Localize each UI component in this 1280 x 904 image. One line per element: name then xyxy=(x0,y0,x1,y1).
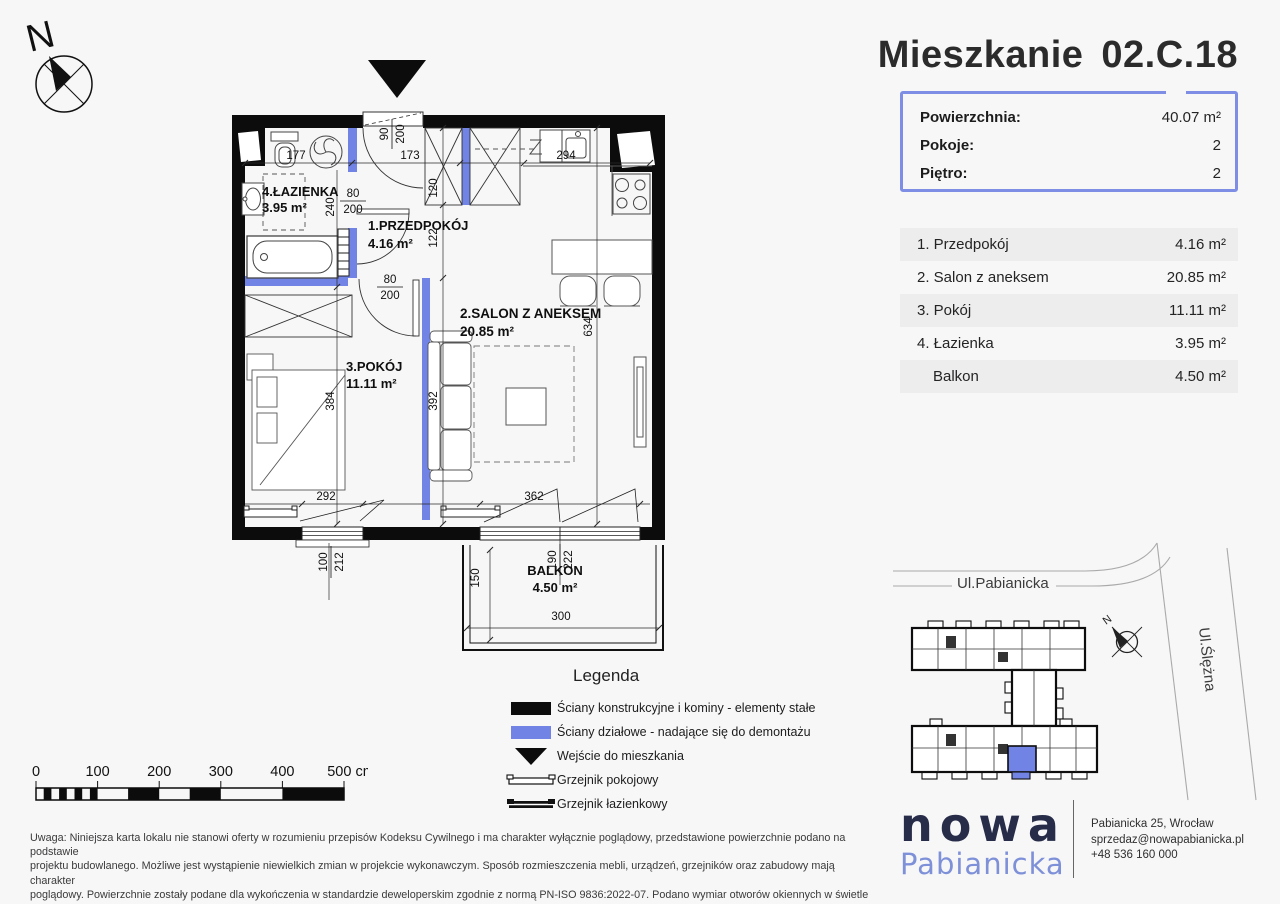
dim-bath-door: 80 200 xyxy=(340,188,366,216)
label-room-area: 11.11 m² xyxy=(346,376,397,391)
scale-bar: 0 100 200 300 400 500 cm xyxy=(28,758,368,810)
apartment-title-label: Mieszkanie xyxy=(878,34,1084,77)
dim-177: 177 xyxy=(286,150,305,162)
summary-box-notch xyxy=(1166,90,1186,96)
legend-title: Legenda xyxy=(573,666,845,686)
room-area: 4.50 m² xyxy=(1175,368,1226,385)
scale-tick-label: 200 xyxy=(147,764,171,780)
legend-item-label: Ściany działowe - nadające się do demont… xyxy=(557,725,811,739)
room-list-row: 4. Łazienka 3.95 m² xyxy=(900,327,1238,360)
wall-partition-swatch xyxy=(511,726,551,739)
brand-logo-line1: nowa xyxy=(900,802,1066,848)
disclaimer: Uwaga: Niniejsza karta lokalu nie stanow… xyxy=(30,831,878,904)
legend-item-label: Wejście do mieszkania xyxy=(557,749,684,763)
dim-173: 173 xyxy=(400,150,419,162)
summary-value: 2 xyxy=(1213,165,1221,182)
room-area: 3.95 m² xyxy=(1175,335,1226,352)
highlighted-unit-balcony xyxy=(1012,772,1030,779)
scale-tick-label: 300 xyxy=(209,764,233,780)
dim-392: 392 xyxy=(428,391,440,410)
summary-row-floor: Piętro: 2 xyxy=(903,159,1235,187)
lot-card-page: N xyxy=(0,0,1280,904)
dim-362: 362 xyxy=(524,491,543,503)
chairs xyxy=(560,276,640,306)
legend-item-label: Grzejnik pokojowy xyxy=(557,773,658,787)
contact-address: Pabianicka 25, Wrocław xyxy=(1091,817,1244,833)
label-salon: 2.SALON Z ANEKSEM xyxy=(460,306,601,321)
summary-value: 40.07 m² xyxy=(1162,109,1221,126)
brand-logo: nowa Pabianicka xyxy=(900,802,1066,879)
room-list-row: 2. Salon z aneksem 20.85 m² xyxy=(900,261,1238,294)
svg-text:90: 90 xyxy=(379,128,391,141)
apartment-number: 02.C.18 xyxy=(1101,34,1238,77)
footer-divider xyxy=(1073,800,1074,878)
scale-bar-blocks xyxy=(36,788,344,800)
dim-240: 240 xyxy=(325,197,337,216)
north-label: N xyxy=(22,13,59,60)
label-salon-area: 20.85 m² xyxy=(460,324,515,339)
label-bathroom: 4.ŁAZIENKA xyxy=(262,184,339,199)
radiator-room-icon xyxy=(506,773,556,787)
svg-text:200: 200 xyxy=(343,204,362,216)
disclaimer-line: projektu budowlanego. Możliwe jest wystą… xyxy=(30,859,878,887)
legend: Legenda Ściany konstrukcyjne i kominy - … xyxy=(505,666,845,816)
street-label-right: Ul.Ślężna xyxy=(1195,627,1220,693)
bed xyxy=(247,354,345,490)
dim-292: 292 xyxy=(316,491,335,503)
entrance-arrow-icon xyxy=(368,60,426,98)
disclaimer-line: poglądowy. Powierzchnie zostały podane d… xyxy=(30,888,878,904)
radiator-bath-icon xyxy=(506,797,556,811)
contact-phone: +48 536 160 000 xyxy=(1091,848,1244,864)
contact-block: Pabianicka 25, Wrocław sprzedaz@nowapabi… xyxy=(1091,817,1244,864)
dim-room-door: 80 200 xyxy=(377,274,403,302)
legend-item: Grzejnik łazienkowy xyxy=(505,792,845,816)
wardrobe xyxy=(245,295,352,337)
map-north-label: N xyxy=(1101,613,1115,627)
label-room: 3.POKÓJ xyxy=(346,359,402,374)
street-label-top: Ul.Pabianicka xyxy=(957,575,1049,592)
room-name: Balkon xyxy=(917,368,979,385)
dim-150: 150 xyxy=(470,568,482,587)
dining-table xyxy=(552,240,652,274)
scale-tick-label: 0 xyxy=(32,764,40,780)
svg-text:80: 80 xyxy=(384,274,397,286)
highlighted-unit xyxy=(1008,746,1036,772)
legend-item: Ściany konstrukcyjne i kominy - elementy… xyxy=(505,696,845,720)
label-balcony: BALKON xyxy=(527,563,583,578)
wall-solid-swatch xyxy=(511,702,551,715)
summary-row-rooms: Pokoje: 2 xyxy=(903,131,1235,159)
room-list-row: 3. Pokój 11.11 m² xyxy=(900,294,1238,327)
dim-120: 120 xyxy=(428,178,440,197)
room-list-row: 1. Przedpokój 4.16 m² xyxy=(900,228,1238,261)
room-name: 1. Przedpokój xyxy=(917,236,1009,253)
summary-label: Pokoje: xyxy=(920,137,974,154)
summary-value: 2 xyxy=(1213,137,1221,154)
summary-label: Piętro: xyxy=(920,165,968,182)
room-area: 4.16 m² xyxy=(1175,236,1226,253)
label-balcony-area: 4.50 m² xyxy=(533,580,578,595)
coffee-table xyxy=(506,388,546,425)
balcony-door-window xyxy=(480,489,640,540)
dim-294: 294 xyxy=(556,150,576,162)
bathtub xyxy=(247,236,338,278)
label-hall-area: 4.16 m² xyxy=(368,236,413,251)
room-list-row: Balkon 4.50 m² xyxy=(900,360,1238,393)
room-area: 20.85 m² xyxy=(1167,269,1226,286)
scale-tick-label: 400 xyxy=(270,764,294,780)
bath-radiator xyxy=(338,229,349,276)
washbasin xyxy=(242,183,264,215)
scale-tick-label: 100 xyxy=(85,764,109,780)
shaft-left xyxy=(238,131,261,162)
dim-window-left: 100 212 xyxy=(318,546,346,578)
svg-text:200: 200 xyxy=(380,290,399,302)
legend-item-label: Ściany konstrukcyjne i kominy - elementy… xyxy=(557,701,815,715)
disclaimer-line: Uwaga: Niniejsza karta lokalu nie stanow… xyxy=(30,831,878,859)
shaft-right xyxy=(617,131,655,168)
brand-logo-line2: Pabianicka xyxy=(900,850,1066,879)
room-name: 2. Salon z aneksem xyxy=(917,269,1049,286)
north-compass-icon: N xyxy=(22,13,92,112)
room-name: 4. Łazienka xyxy=(917,335,994,352)
bedroom-door xyxy=(359,279,419,336)
floor-plan: N xyxy=(0,0,880,680)
label-hall: 1.PRZEDPOKÓJ xyxy=(368,218,468,233)
summary-label: Powierzchnia: xyxy=(920,109,1021,126)
svg-text:100: 100 xyxy=(318,552,330,571)
contact-email: sprzedaz@nowapabianicka.pl xyxy=(1091,833,1244,849)
stove xyxy=(613,174,650,214)
svg-text:200: 200 xyxy=(395,124,407,143)
entrance-triangle-icon xyxy=(515,748,547,765)
map-compass-icon: N xyxy=(1101,613,1142,657)
dim-384: 384 xyxy=(325,391,337,411)
label-bathroom-area: 3.95 m² xyxy=(262,200,307,215)
dim-300: 300 xyxy=(551,611,570,623)
room-radiators xyxy=(244,506,500,517)
summary-row-area: Powierzchnia: 40.07 m² xyxy=(903,103,1235,131)
svg-text:80: 80 xyxy=(347,188,360,200)
apartment-title: Mieszkanie 02.C.18 xyxy=(880,34,1238,77)
legend-item: Grzejnik pokojowy xyxy=(505,768,845,792)
legend-item-label: Grzejnik łazienkowy xyxy=(557,797,667,811)
room-name: 3. Pokój xyxy=(917,302,971,319)
summary-box: Powierzchnia: 40.07 m² Pokoje: 2 Piętro:… xyxy=(900,91,1238,192)
room-list: 1. Przedpokój 4.16 m² 2. Salon z aneksem… xyxy=(900,228,1238,393)
legend-item: Wejście do mieszkania xyxy=(505,744,845,768)
room-area: 11.11 m² xyxy=(1169,302,1226,319)
scale-tick-label: 500 cm xyxy=(327,764,368,780)
site-map: Ul.Pabianicka Ul.Ślężna N xyxy=(880,540,1280,804)
building-footprint xyxy=(912,621,1097,779)
svg-text:212: 212 xyxy=(334,552,346,571)
tv-unit xyxy=(634,357,646,447)
legend-item: Ściany działowe - nadające się do demont… xyxy=(505,720,845,744)
